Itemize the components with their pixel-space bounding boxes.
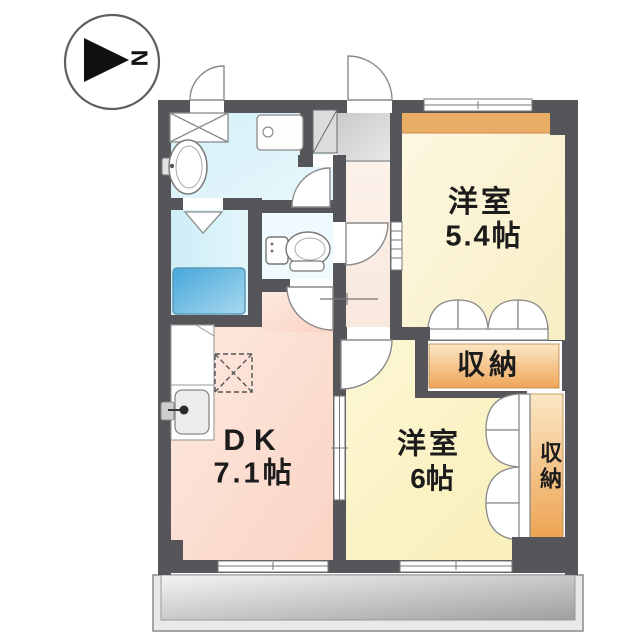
dk-name-label: DK [223, 426, 284, 456]
service-door-arc [190, 66, 224, 100]
room-b-name-label: 洋室 [397, 431, 461, 460]
room-a-name-label: 洋室 [448, 188, 514, 218]
storage-between-label: 収納 [457, 351, 521, 379]
entrance-door-arc [348, 56, 392, 100]
closet-x [170, 113, 228, 142]
sliding-panel-hall-room-a [391, 222, 402, 270]
bay-window-band [402, 113, 552, 133]
room-b-size-label: 6帖 [410, 465, 454, 493]
sliding-door-dk-room-b [331, 396, 348, 500]
storage-side-label: 収納 [538, 441, 560, 493]
shoe-cabinet [313, 110, 337, 153]
room-a-size-label: 5.4帖 [445, 223, 522, 252]
bathtub [173, 268, 245, 314]
window-dk [218, 561, 328, 572]
window-room-b [400, 561, 512, 572]
entrance-floor [337, 113, 390, 162]
dk-size-label: 7.1帖 [213, 460, 294, 489]
washing-machine-pan [257, 115, 303, 150]
balcony [153, 575, 583, 631]
compass-north-label: N [128, 50, 151, 67]
floor-plan-drawing [0, 0, 640, 640]
window-room-a [424, 99, 532, 111]
floor-plan-page: N 洋室 5.4帖 収納 DK 7.1帖 洋室 6帖 収納 [0, 0, 640, 640]
